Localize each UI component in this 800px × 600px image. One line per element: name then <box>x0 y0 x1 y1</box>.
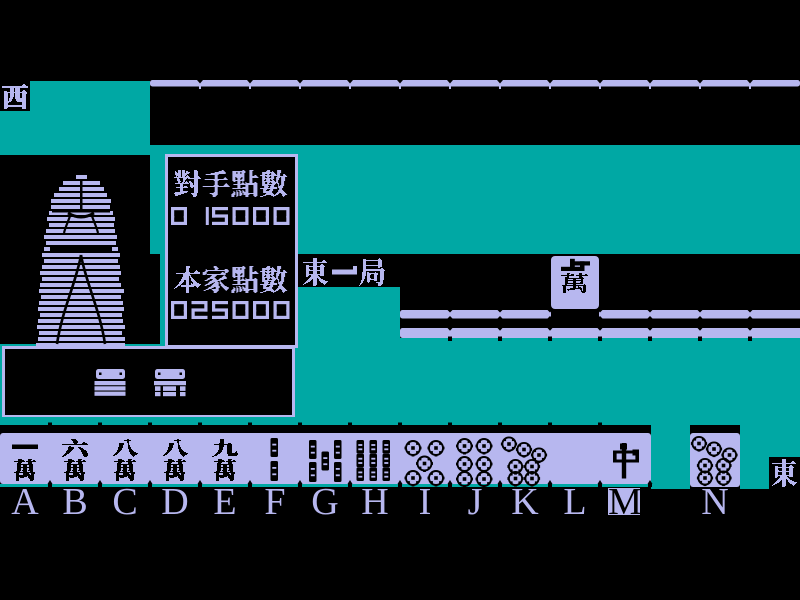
svg-text:A: A <box>11 481 39 523</box>
svg-text:L: L <box>563 481 586 523</box>
svg-text:G: G <box>311 481 338 523</box>
svg-text:F: F <box>264 481 285 523</box>
svg-text:E: E <box>213 481 236 523</box>
svg-text:N: N <box>701 481 728 523</box>
svg-text:C: C <box>112 481 137 523</box>
svg-text:J: J <box>468 481 483 523</box>
svg-text:K: K <box>511 481 539 523</box>
svg-text:M: M <box>608 481 642 523</box>
svg-text:D: D <box>161 481 188 523</box>
svg-text:H: H <box>361 481 388 523</box>
svg-text:I: I <box>419 481 432 523</box>
svg-text:B: B <box>62 481 87 523</box>
